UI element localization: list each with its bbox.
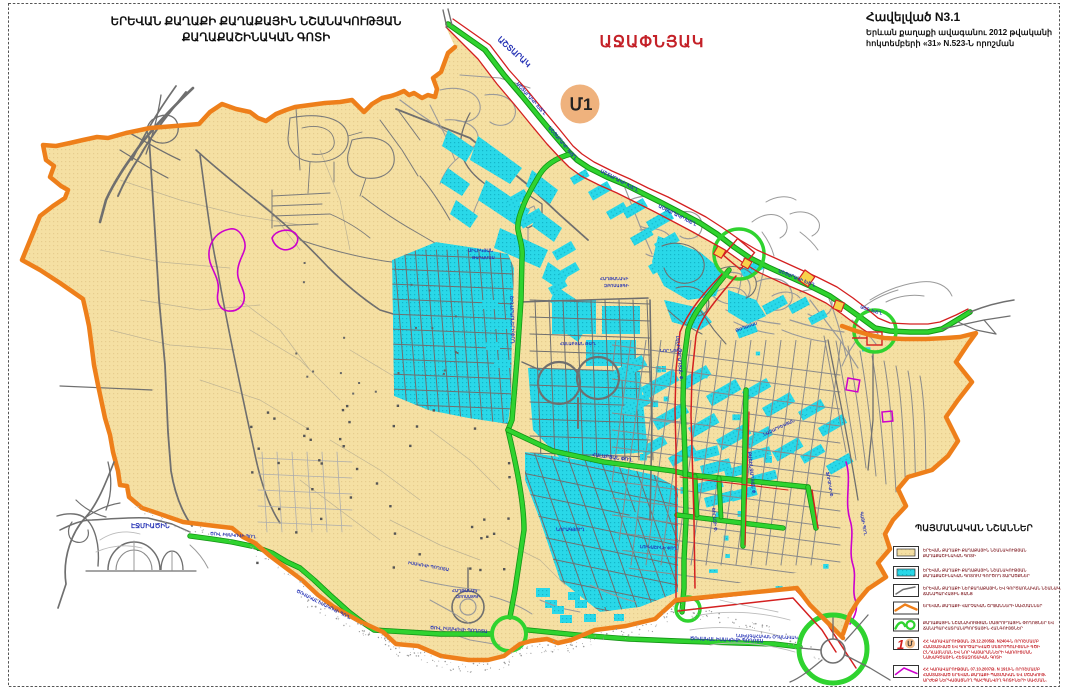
svg-text:ՔԱՂԱՔԱՇԻՆԱԿԱՆ ԳՈՏԻ: ՔԱՂԱՔԱՇԻՆԱԿԱՆ ԳՈՏԻ: [182, 31, 331, 44]
svg-text:ԱՐԺԵՔ ՆԵՐԿԱՅԱՑՆՈՂ ՊԱՀՊԱՆՎՈՂ ԳՈ: ԱՐԺԵՔ ՆԵՐԿԱՅԱՑՆՈՂ ՊԱՀՊԱՆՎՈՂ ԳՈՏԻՆԵՐԻ ՍԱՀ…: [923, 677, 1047, 682]
svg-text:ԸՆԴԼԱՅՆՄԱՆ ԵՎ ՆՈՐ ԿԱՅԱՐԱՆՆԵՐԻ: ԸՆԴԼԱՅՆՄԱՆ ԵՎ ՆՈՐ ԿԱՅԱՐԱՆՆԵՐԻ ԿԱՌՈՒՑՄԱՆ: [923, 649, 1032, 654]
svg-text:ՔԱՂԱՔԱՇԻՆԱԿԱՆ ԳՈՏԻ: ՔԱՂԱՔԱՇԻՆԱԿԱՆ ԳՈՏԻ: [923, 553, 976, 558]
svg-text:Երևան քաղաքի ավագանու 2012 թվա: Երևան քաղաքի ավագանու 2012 թվականի: [866, 28, 1052, 37]
svg-text:ԶԲՈՍԱՅԳԻ: ԶԲՈՍԱՅԳԻ: [456, 594, 480, 599]
svg-text:ՆՈՐ ՆՈՐՔ: ՆՈՐ ՆՈՐՔ: [659, 348, 682, 353]
svg-text:ԱՋԱՓՆՅԱԿ: ԱՋԱՓՆՅԱԿ: [599, 34, 704, 51]
svg-text:ՃԱՆԱՊԱՐՀԱՅԻՆ ՑԱՆՑ: ՃԱՆԱՊԱՐՀԱՅԻՆ ՑԱՆՑ: [923, 591, 973, 596]
svg-text:ԵՐԵՎԱՆ ՔԱՂԱՔԻ ՎԱՐՉԱԿԱՆ ՇՐՋԱՆՆԵ: ԵՐԵՎԱՆ ՔԱՂԱՔԻ ՎԱՐՉԱԿԱՆ ՇՐՋԱՆՆԵՐԻ ՍԱՀՄԱՆՆ…: [923, 603, 1042, 608]
svg-text:ՀԱԼԱԲՅԱՆ ԹԱՂ.: ՀԱԼԱԲՅԱՆ ԹԱՂ.: [560, 341, 596, 346]
svg-text:ԷՋՄԻԱԾԻՆ: ԷՋՄԻԱԾԻՆ: [131, 522, 170, 530]
svg-text:Հավելված N3.1: Հավելված N3.1: [866, 10, 961, 24]
svg-text:ՀԱՍՏԱՏՎԱԾ ԵՎ ԳՈՐԾԱՐԿՎԱԾ ՄԵՏՐՈՊ: ՀԱՍՏԱՏՎԱԾ ԵՎ ԳՈՐԾԱՐԿՎԱԾ ՄԵՏՐՈՊՈԼԻՏԵՆԻ ԳԾ…: [923, 644, 1040, 649]
svg-text:ՔԱՂԱՔԱՇԻՆԱԿԱՆ ԳՈՏՈՒՄ ԳՈՐԾՈՂ ՏԱ: ՔԱՂԱՔԱՇԻՆԱԿԱՆ ԳՈՏՈՒՄ ԳՈՐԾՈՂ ՏԱՐԱԾՔՆԵՐ: [923, 573, 1030, 578]
svg-text:ԵՐԵՎԱՆ ՔԱՂԱՔԻ ՔԱՂԱՔԱՅԻՆ ՆՇԱՆԱԿ: ԵՐԵՎԱՆ ՔԱՂԱՔԻ ՔԱՂԱՔԱՅԻՆ ՆՇԱՆԱԿՈՒԹՅԱՆ: [111, 15, 402, 28]
svg-text:ՆԱԽԱԳԾԱՅԻՆ ՀԵՏԱԶՈՏԱԿԱՆ ԳՈՏԻ: ՆԱԽԱԳԾԱՅԻՆ ՀԵՏԱԶՈՏԱԿԱՆ ԳՈՏԻ: [922, 655, 1002, 660]
svg-text:ՀԱՂԹԱՆԱԿԻ: ՀԱՂԹԱՆԱԿԻ: [600, 276, 628, 281]
svg-text:հոկտեմբերի «31» N.523-Ն որ: հոկտեմբերի «31» N.523-Ն որոշման: [866, 38, 1014, 48]
svg-text:ՊԱՅՄԱՆԱԿԱՆ ՆՇԱՆՆԵՐ: ՊԱՅՄԱՆԱԿԱՆ ՆՇԱՆՆԵՐ: [915, 523, 1033, 533]
svg-text:ԹԱՂԱՄԱՍ: ԹԱՂԱՄԱՍ: [472, 255, 495, 260]
svg-text:ՀՀ ԿԱՌԱՎԱՐՈՒԹՅԱՆ 29.12.2005Թ.: ՀՀ ԿԱՌԱՎԱՐՈՒԹՅԱՆ 29.12.2005Թ. N2404-Ն ՈՐ…: [923, 639, 1039, 644]
svg-text:ՆՈՐԱԳՅՈՒՂ: ՆՈՐԱԳՅՈՒՂ: [555, 527, 585, 532]
svg-text:ՀՀ ԿԱՌԱՎԱՐՈՒԹՅԱՆ 07.10.2007Թ.: ՀՀ ԿԱՌԱՎԱՐՈՒԹՅԱՆ 07.10.2007Թ. N 1910-Ն Ո…: [923, 667, 1040, 672]
svg-text:Մ: Մ: [907, 640, 913, 648]
svg-text:Մ1: Մ1: [570, 95, 593, 114]
svg-text:ԶԲՈՍԱՅԳԻ: ԶԲՈՍԱՅԳԻ: [604, 283, 629, 288]
svg-text:ՔԱՂԱՔԱՅԻՆ ՆՇԱՆԱԿՈՒԹՅԱՆ ՄԱՅՐՈՒՂ: ՔԱՂԱՔԱՅԻՆ ՆՇԱՆԱԿՈՒԹՅԱՆ ՄԱՅՐՈՒՂԱՅԻՆ ՓՈՂՈՑ…: [923, 620, 1055, 625]
svg-text:ԵՐԵՎԱՆ ՔԱՂԱՔԻ ՆԵՐՔԱՂԱՔԱՅԻՆ ԵՎ: ԵՐԵՎԱՆ ՔԱՂԱՔԻ ՆԵՐՔԱՂԱՔԱՅԻՆ ԵՎ ԳՈՐԾԱՌՆԱԿԱ…: [923, 586, 1061, 591]
svg-text:ՀԱՂԹԱՆԱԿ: ՀԱՂԹԱՆԱԿ: [452, 588, 478, 593]
svg-text:1: 1: [897, 637, 904, 652]
svg-text:ԵՐԵՎԱՆ ՔԱՂԱՔԻ ՔԱՂԱՔԱՅԻՆ ՆՇԱՆԱԿ: ԵՐԵՎԱՆ ՔԱՂԱՔԻ ՔԱՂԱՔԱՅԻՆ ՆՇԱՆԱԿՈՒԹՅԱՆ: [923, 568, 1026, 573]
svg-text:ՍԻԼԻԿՅԱՆ: ՍԻԼԻԿՅԱՆ: [468, 247, 494, 253]
svg-text:ԵՐԵՎԱՆ ՔԱՂԱՔԻ ՔԱՂԱՔԱՅԻՆ ՆՇԱՆԱԿ: ԵՐԵՎԱՆ ՔԱՂԱՔԻ ՔԱՂԱՔԱՅԻՆ ՆՇԱՆԱԿՈՒԹՅԱՆ: [923, 548, 1026, 553]
svg-text:ՀԱՍՏԱՏՎԱԾ ԵՐԵՎԱՆ ՔԱՂԱՔԻ ՊԱՏՄԱԿ: ՀԱՍՏԱՏՎԱԾ ԵՐԵՎԱՆ ՔԱՂԱՔԻ ՊԱՏՄԱԿԱՆ ԵՎ ՄՇԱԿ…: [923, 672, 1046, 677]
svg-text:ՃԱՆԱՊԱՐՀԱՏՐԱՆՍՊՈՐՏԱՅԻՆ ՀԱՆԳՈՒՅ: ՃԱՆԱՊԱՐՀԱՏՐԱՆՍՊՈՐՏԱՅԻՆ ՀԱՆԳՈՒՅՑՆԵՐ: [923, 625, 1023, 630]
